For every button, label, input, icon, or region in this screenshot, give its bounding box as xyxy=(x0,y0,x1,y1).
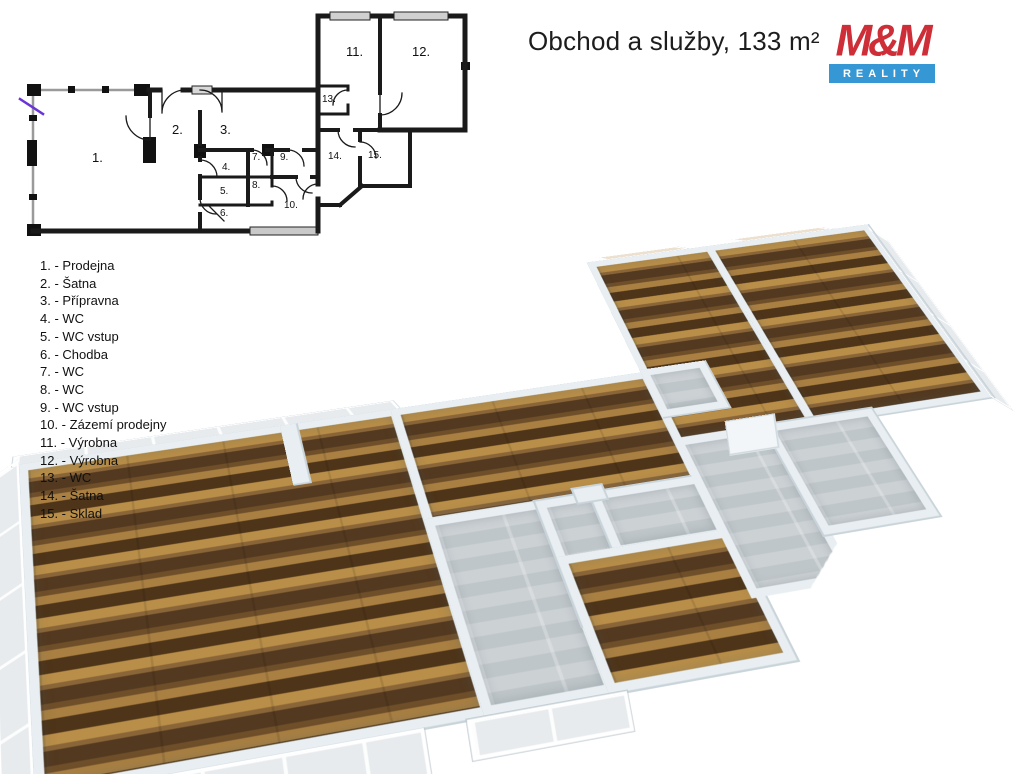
room-label-2: 2. xyxy=(172,122,183,137)
legend-item-7: 7. - WC xyxy=(40,363,166,381)
room-label-4: 4. xyxy=(222,162,230,173)
legend-item-12: 12. - Výrobna xyxy=(40,452,166,470)
room-label-13: 13. xyxy=(322,94,336,105)
room-label-10: 10. xyxy=(284,200,298,211)
legend-item-5: 5. - WC vstup xyxy=(40,328,166,346)
room-label-12: 12. xyxy=(412,44,430,59)
real-estate-flyer: 1. 2. 3. 4. 5. 6. 7. 8. 9. 10. 11. 12. 1… xyxy=(0,0,1024,576)
legend-item-9: 9. - WC vstup xyxy=(40,399,166,417)
room-legend: 1. - Prodejna 2. - Šatna 3. - Přípravna … xyxy=(40,257,166,523)
legend-item-14: 14. - Šatna xyxy=(40,487,166,505)
legend-item-8: 8. - WC xyxy=(40,381,166,399)
room-label-6: 6. xyxy=(220,208,228,219)
room-label-9: 9. xyxy=(280,152,288,163)
room-label-14: 14. xyxy=(328,151,342,162)
legend-item-2: 2. - Šatna xyxy=(40,275,166,293)
legend-item-6: 6. - Chodba xyxy=(40,346,166,364)
legend-item-10: 10. - Zázemí prodejny xyxy=(40,416,166,434)
room-label-7: 7. xyxy=(252,152,260,163)
legend-item-11: 11. - Výrobna xyxy=(40,434,166,452)
room-label-8: 8. xyxy=(252,180,260,191)
legend-item-4: 4. - WC xyxy=(40,310,166,328)
legend-item-3: 3. - Přípravna xyxy=(40,292,166,310)
legend-item-15: 15. - Sklad xyxy=(40,505,166,523)
room-label-5: 5. xyxy=(220,186,228,197)
room-label-15: 15. xyxy=(368,150,382,161)
room-label-11: 11. xyxy=(346,44,363,59)
legend-item-13: 13. - WC xyxy=(40,469,166,487)
room-label-3: 3. xyxy=(220,122,231,137)
legend-item-1: 1. - Prodejna xyxy=(40,257,166,275)
room-label-1: 1. xyxy=(92,150,103,165)
